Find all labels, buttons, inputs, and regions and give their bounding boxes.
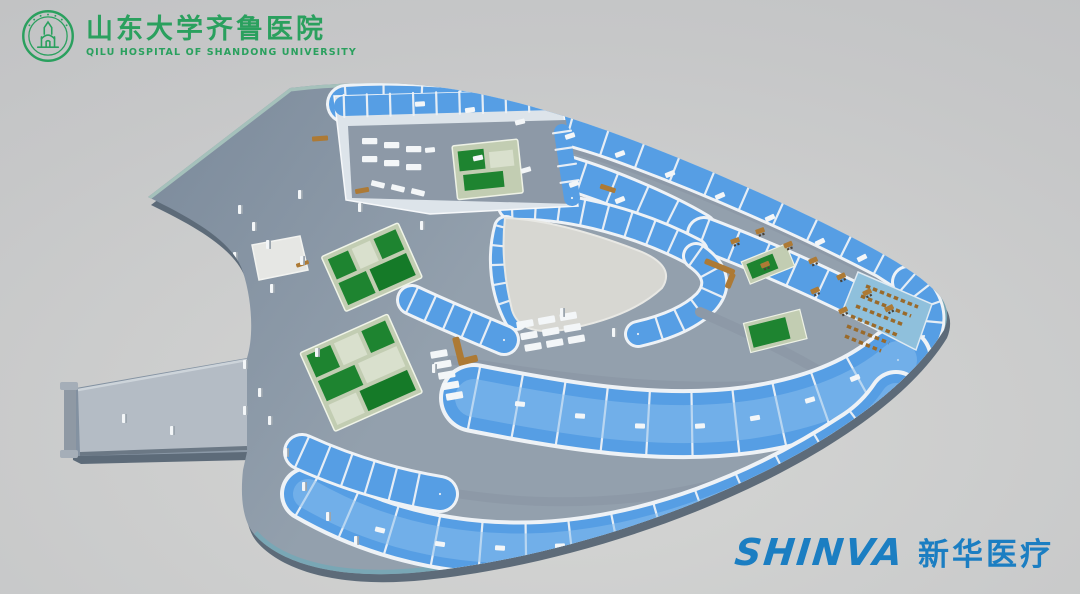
hospital-name-en: QILU HOSPITAL OF SHANDONG UNIVERSITY <box>86 47 357 58</box>
hospital-logo: 山东大学齐鲁医院 QILU HOSPITAL OF SHANDONG UNIVE… <box>20 8 357 64</box>
vendor-name-zh: 新华医疗 <box>918 529 1054 574</box>
corridor-arm <box>78 360 247 454</box>
qilu-hospital-seal-icon <box>20 8 76 64</box>
lab-green-suite <box>452 139 523 200</box>
lab-block <box>312 90 579 214</box>
floorplan-3d-model <box>0 0 1080 594</box>
vendor-logo: SHINVA 新华医疗 <box>735 529 1054 574</box>
hospital-name-block: 山东大学齐鲁医院 QILU HOSPITAL OF SHANDONG UNIVE… <box>86 14 357 57</box>
hospital-name-zh: 山东大学齐鲁医院 <box>86 14 357 45</box>
corridor-arm-endcap <box>60 382 78 458</box>
vendor-wordmark: SHINVA <box>733 531 907 574</box>
hospital-floorplan-screenshot: 山东大学齐鲁医院 QILU HOSPITAL OF SHANDONG UNIVE… <box>0 0 1080 594</box>
seal-building-glyph <box>38 22 59 47</box>
